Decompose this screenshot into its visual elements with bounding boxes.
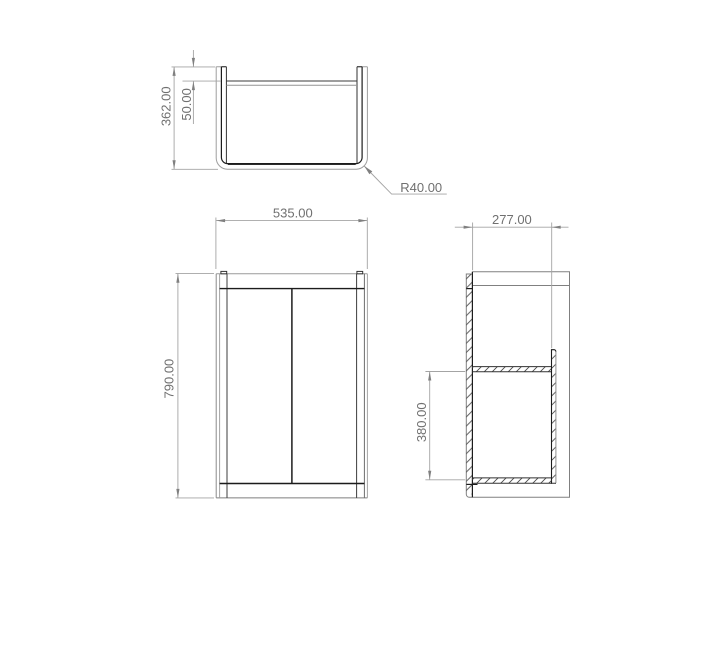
- svg-text:R40.00: R40.00: [400, 180, 442, 195]
- svg-text:50.00: 50.00: [179, 88, 194, 121]
- svg-text:380.00: 380.00: [414, 402, 429, 442]
- svg-text:790.00: 790.00: [161, 359, 176, 399]
- svg-text:535.00: 535.00: [273, 205, 313, 220]
- svg-text:362.00: 362.00: [159, 86, 174, 126]
- svg-text:277.00: 277.00: [492, 212, 532, 227]
